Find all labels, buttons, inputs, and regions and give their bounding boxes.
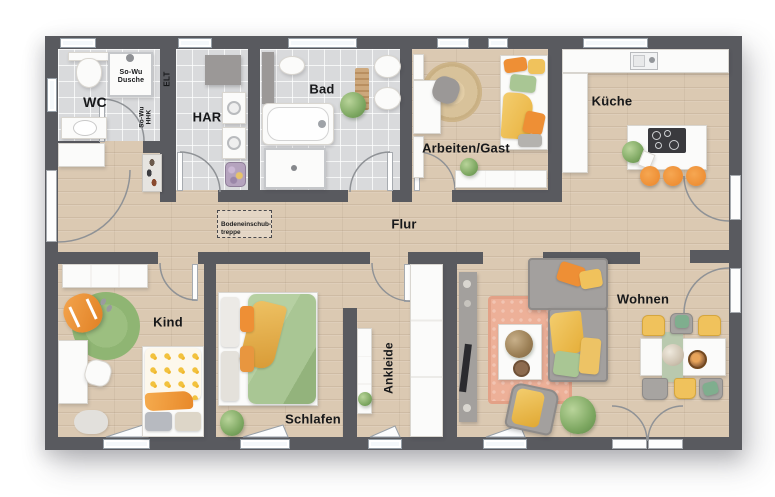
kind-desk — [58, 340, 88, 404]
schlafen-pillow-white-1 — [221, 297, 239, 347]
hall-sideboard — [58, 143, 105, 167]
wall-kueche-wohnen-stub — [690, 250, 729, 263]
sofa-pillow-green — [552, 350, 581, 377]
ankleide-plant — [358, 392, 372, 406]
burner-3 — [655, 142, 662, 149]
sofa-pillow-yellow — [579, 268, 604, 290]
label-flur: Flur — [391, 218, 416, 233]
window-kind-bottom — [103, 439, 150, 449]
burner-1 — [652, 131, 661, 140]
dryer-door-icon — [227, 136, 241, 150]
window-kueche-top — [583, 38, 648, 48]
shoes — [145, 158, 159, 188]
kitchen-faucet-icon — [649, 57, 655, 63]
bathtub-faucet-icon — [318, 120, 326, 128]
label-hhk: So-Wu HHK — [139, 106, 154, 127]
kind-cloud-rug — [74, 410, 108, 434]
shower-drain-icon — [291, 165, 297, 171]
window-schlafen-bottom — [240, 439, 290, 449]
wall-bad-arbeiten — [400, 49, 412, 202]
guest-bed-pillow-yellow — [528, 59, 545, 74]
sofa-pillow-yellow-2 — [578, 337, 601, 375]
window-har-top — [178, 38, 212, 48]
window-bad-top — [288, 38, 357, 48]
coffee-table-tray — [513, 360, 530, 377]
ankleide-wardrobe — [410, 264, 443, 437]
bar-stool-1 — [640, 166, 660, 186]
wall-outer-right — [729, 36, 742, 450]
kind-blanket-orange — [145, 391, 194, 411]
window-ankleide-bottom — [368, 439, 402, 449]
wall-schlafen-north — [198, 252, 370, 264]
bad-bidet — [279, 56, 305, 75]
arbeiten-plant — [460, 158, 478, 176]
media-deco-candle-1 — [463, 280, 471, 288]
wall-ankleide-wohnen — [443, 264, 457, 437]
bad-cabinet — [262, 52, 274, 104]
wall-kind-north-left — [58, 252, 158, 264]
label-wohnen: Wohnen — [617, 293, 669, 308]
washbasin-left — [374, 55, 401, 78]
label-arbeiten-gast: Arbeiten/Gast — [422, 142, 510, 157]
schlafen-plant — [220, 410, 244, 436]
bar-stool-3 — [686, 166, 706, 186]
media-deco-candle-3 — [463, 404, 471, 412]
media-deco-candle-2 — [464, 300, 471, 307]
label-elt: ELT — [164, 71, 173, 86]
label-schlafen: Schlafen — [285, 413, 341, 428]
burner-4 — [669, 140, 679, 150]
har-door-leaf — [177, 152, 183, 191]
dining-chair-yellow-1 — [642, 315, 665, 336]
har-storage-box — [205, 55, 241, 85]
table-bowl — [688, 350, 707, 369]
shower-head-icon — [126, 54, 134, 62]
dining-chair-yellow-2 — [698, 315, 721, 336]
kind-wardrobe — [62, 264, 148, 288]
dining-chair-green-cushion — [675, 315, 689, 328]
wall-arbeiten-kueche — [548, 49, 562, 202]
entrance-door-leaf — [46, 170, 57, 242]
wall-ankleide-north — [408, 252, 483, 264]
guest-bed-pillow-green — [509, 74, 537, 94]
attic-stairs-box: Bodeneinschub- treppe — [217, 210, 272, 238]
kind-pillow-gray — [145, 412, 172, 431]
kitchen-sink-basin — [633, 55, 645, 67]
washbasin-right — [374, 87, 401, 110]
kind-door-leaf — [192, 264, 198, 301]
bar-stool-2 — [663, 166, 683, 186]
floor-plan: Bodeneinschub- treppe — [0, 0, 775, 497]
bad-door-leaf — [387, 152, 393, 191]
coffee-table-plant — [505, 330, 533, 358]
laundry-basket — [225, 162, 246, 187]
kind-pillow-cream — [175, 412, 201, 431]
label-har: HAR — [193, 111, 222, 126]
label-wc: WC — [83, 95, 107, 111]
wall-kind-schlafen — [204, 264, 216, 437]
kitchen-counter-left — [562, 73, 588, 173]
wohnen-plant — [560, 396, 596, 434]
label-shower: So-Wu Dusche — [118, 69, 145, 85]
wall-har-bad — [248, 49, 260, 202]
attic-stairs-label: Bodeneinschub- treppe — [221, 221, 271, 236]
window-wohnen-bottom — [483, 439, 527, 449]
dining-chair-yellow-3 — [674, 378, 696, 399]
washing-machine-door-icon — [227, 101, 241, 115]
window-arbeiten-top-1 — [437, 38, 469, 48]
schlafen-pillow-orange-1 — [240, 306, 254, 332]
window-arbeiten-top-2 — [488, 38, 508, 48]
washbasin — [73, 120, 97, 136]
wall-wc-south-right — [143, 141, 161, 153]
label-kind: Kind — [153, 316, 183, 331]
kueche-terrace-door-leaf — [730, 175, 741, 220]
label-ankleide: Ankleide — [382, 342, 395, 394]
bad-plant — [340, 92, 366, 118]
wall-arbeiten-south — [452, 190, 562, 202]
guest-bed-pillow-gray — [518, 134, 542, 147]
wall-schlafen-ankleide — [343, 308, 357, 437]
schlafen-pillow-orange-2 — [240, 346, 254, 372]
window-wc-left — [47, 78, 57, 112]
window-wc-top — [60, 38, 96, 48]
label-bad: Bad — [309, 83, 334, 98]
dining-chair-gray-2 — [642, 378, 668, 400]
toilet — [76, 58, 102, 88]
label-kueche: Küche — [592, 95, 633, 110]
wall-har-bad-south — [218, 190, 348, 202]
schlafen-pillow-white-2 — [221, 351, 239, 401]
french-door-left-leaf — [612, 439, 647, 449]
french-door-right-leaf — [648, 439, 683, 449]
table-flowers — [662, 344, 684, 366]
bookshelf-top — [413, 54, 424, 80]
wohnen-terrace-door-leaf — [730, 268, 741, 313]
burner-2 — [664, 130, 671, 137]
